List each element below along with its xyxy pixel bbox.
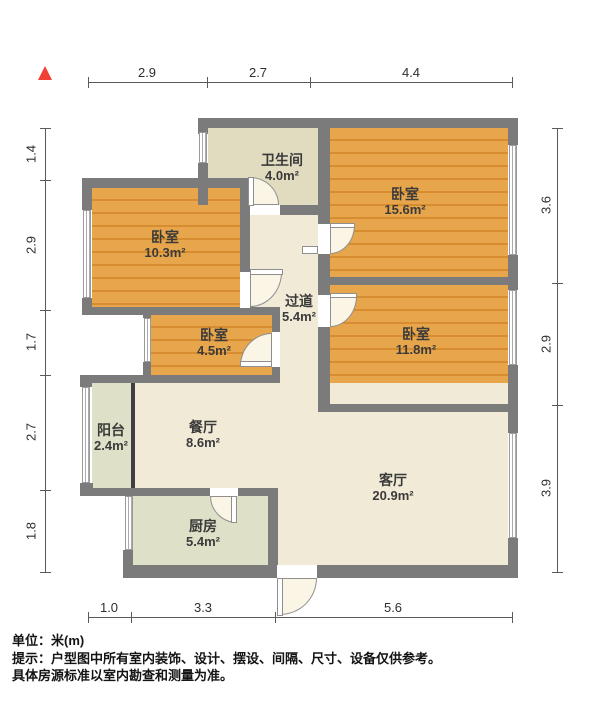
room-area: 4.0m² xyxy=(261,168,303,184)
doorway-threshold xyxy=(302,246,318,254)
footer-disclaimer-2: 具体房源标准以室内勘查和测量为准。 xyxy=(12,665,233,684)
dim-label: 2.9 xyxy=(24,236,39,254)
wall-segment xyxy=(82,307,280,315)
north-arrow-icon xyxy=(38,66,52,80)
room-label-bathroom: 卫生间 4.0m² xyxy=(261,152,303,184)
window xyxy=(199,132,207,163)
wall-segment xyxy=(268,488,278,565)
room-area: 15.6m² xyxy=(384,202,425,218)
dim-tick xyxy=(512,77,513,88)
dim-tick xyxy=(275,612,276,623)
bedroom-small-door-leaf xyxy=(240,361,272,367)
dim-tick xyxy=(40,490,51,491)
room-label-bedroom-small: 卧室 4.5m² xyxy=(197,327,231,359)
dim-tick xyxy=(40,572,51,573)
wall-segment xyxy=(508,365,518,433)
dimension-line-left xyxy=(45,128,46,572)
wall-segment xyxy=(82,178,250,188)
room-name: 卧室 xyxy=(396,326,436,342)
room-name: 卫生间 xyxy=(261,152,303,168)
wall-segment xyxy=(123,550,133,565)
dim-label: 2.9 xyxy=(539,335,554,353)
dim-tick xyxy=(40,310,51,311)
room-label-bedroom-main: 卧室 15.6m² xyxy=(384,186,425,218)
wall-segment xyxy=(80,375,280,383)
dim-tick xyxy=(552,283,563,284)
room-name: 阳台 xyxy=(94,422,128,438)
room-name: 卧室 xyxy=(144,229,185,245)
dim-label: 5.6 xyxy=(384,600,402,615)
wall-segment xyxy=(318,404,508,412)
wall-segment xyxy=(272,307,280,332)
entrance-door xyxy=(280,578,317,615)
wall-segment xyxy=(82,188,92,210)
window xyxy=(125,496,133,550)
window xyxy=(509,290,517,365)
doorway xyxy=(250,205,280,215)
dimension-line-bottom xyxy=(88,617,512,618)
dim-label: 4.4 xyxy=(402,65,420,80)
wall-segment xyxy=(123,565,277,578)
room-label-hallway: 过道 5.4m² xyxy=(282,293,316,325)
wall-segment xyxy=(318,327,330,412)
room-area: 2.4m² xyxy=(94,438,128,454)
doorway xyxy=(318,295,330,327)
wall-segment xyxy=(317,565,518,578)
dim-label: 2.7 xyxy=(24,423,39,441)
doorway xyxy=(210,488,238,496)
wall-segment xyxy=(80,375,92,387)
bathroom-door-leaf xyxy=(248,177,254,206)
dim-label: 3.6 xyxy=(539,196,554,214)
window xyxy=(509,433,517,538)
window xyxy=(83,210,91,298)
floor-plan-canvas: Q房网 Q房网 xyxy=(0,0,600,701)
room-area: 4.5m² xyxy=(197,343,231,359)
room-label-bedroom-left: 卧室 10.3m² xyxy=(144,229,185,261)
dim-tick xyxy=(131,612,132,623)
doorway xyxy=(240,272,250,308)
room-name: 过道 xyxy=(282,293,316,309)
room-area: 5.4m² xyxy=(282,309,316,325)
dim-tick xyxy=(512,612,513,623)
dimension-line-right xyxy=(557,128,558,572)
dim-tick xyxy=(88,77,89,88)
wall-segment xyxy=(143,362,151,375)
room-name: 餐厅 xyxy=(186,419,220,435)
wall-segment xyxy=(318,118,330,224)
dim-label: 1.7 xyxy=(24,333,39,351)
wall-segment xyxy=(80,488,210,496)
room-label-living: 客厅 20.9m² xyxy=(372,472,413,504)
window xyxy=(82,387,90,483)
room-area: 5.4m² xyxy=(186,534,220,550)
wall-segment xyxy=(330,277,508,285)
bedroom-left-door-leaf xyxy=(250,269,283,275)
doorway xyxy=(318,224,330,254)
dimension-line-top xyxy=(88,82,512,83)
wall-segment xyxy=(318,254,330,295)
room-label-balcony: 阳台 2.4m² xyxy=(94,422,128,454)
room-name: 客厅 xyxy=(372,472,413,488)
bedroom-main-door-leaf xyxy=(330,223,355,228)
dim-label: 2.9 xyxy=(138,65,156,80)
dim-tick xyxy=(552,128,563,129)
dim-label: 1.4 xyxy=(24,145,39,163)
window xyxy=(144,318,151,362)
dim-tick xyxy=(40,128,51,129)
wall-segment xyxy=(508,118,518,145)
dim-tick xyxy=(207,77,208,88)
room-area: 10.3m² xyxy=(144,245,185,261)
dim-tick xyxy=(310,77,311,88)
kitchen-door-leaf xyxy=(231,496,237,523)
room-area: 8.6m² xyxy=(186,435,220,451)
dim-tick xyxy=(40,180,51,181)
room-name: 厨房 xyxy=(186,518,220,534)
room-label-dining: 餐厅 8.6m² xyxy=(186,419,220,451)
room-name: 卧室 xyxy=(197,327,231,343)
doorway xyxy=(272,332,280,367)
room-label-bedroom-right: 卧室 11.8m² xyxy=(396,326,436,358)
wall-segment xyxy=(198,118,518,128)
bedroom-right-door-leaf xyxy=(330,293,357,298)
dim-tick xyxy=(552,572,563,573)
dim-label: 2.7 xyxy=(249,65,267,80)
room-name: 卧室 xyxy=(384,186,425,202)
doorway xyxy=(277,565,317,578)
window xyxy=(509,145,517,255)
entrance-door-leaf xyxy=(277,578,283,616)
dim-label: 1.8 xyxy=(24,522,39,540)
wall-segment xyxy=(143,307,151,318)
wall-segment xyxy=(508,255,518,290)
room-area: 20.9m² xyxy=(372,488,413,504)
dim-label: 3.9 xyxy=(539,479,554,497)
room-area: 11.8m² xyxy=(396,342,436,358)
dim-label: 3.3 xyxy=(194,600,212,615)
dim-tick xyxy=(552,405,563,406)
dim-tick xyxy=(40,375,51,376)
footer-unit-note: 单位：米(m) xyxy=(12,630,84,649)
dim-tick xyxy=(88,612,89,623)
dim-label: 1.0 xyxy=(100,600,118,615)
room-label-kitchen: 厨房 5.4m² xyxy=(186,518,220,550)
balcony-partition xyxy=(131,383,135,488)
